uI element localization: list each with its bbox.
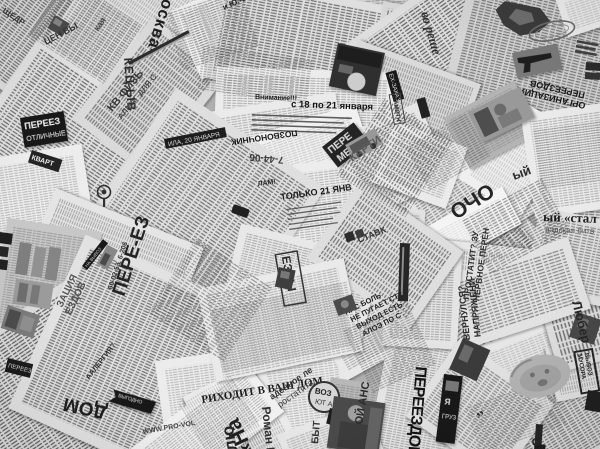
svg-text:О: О — [531, 436, 541, 449]
